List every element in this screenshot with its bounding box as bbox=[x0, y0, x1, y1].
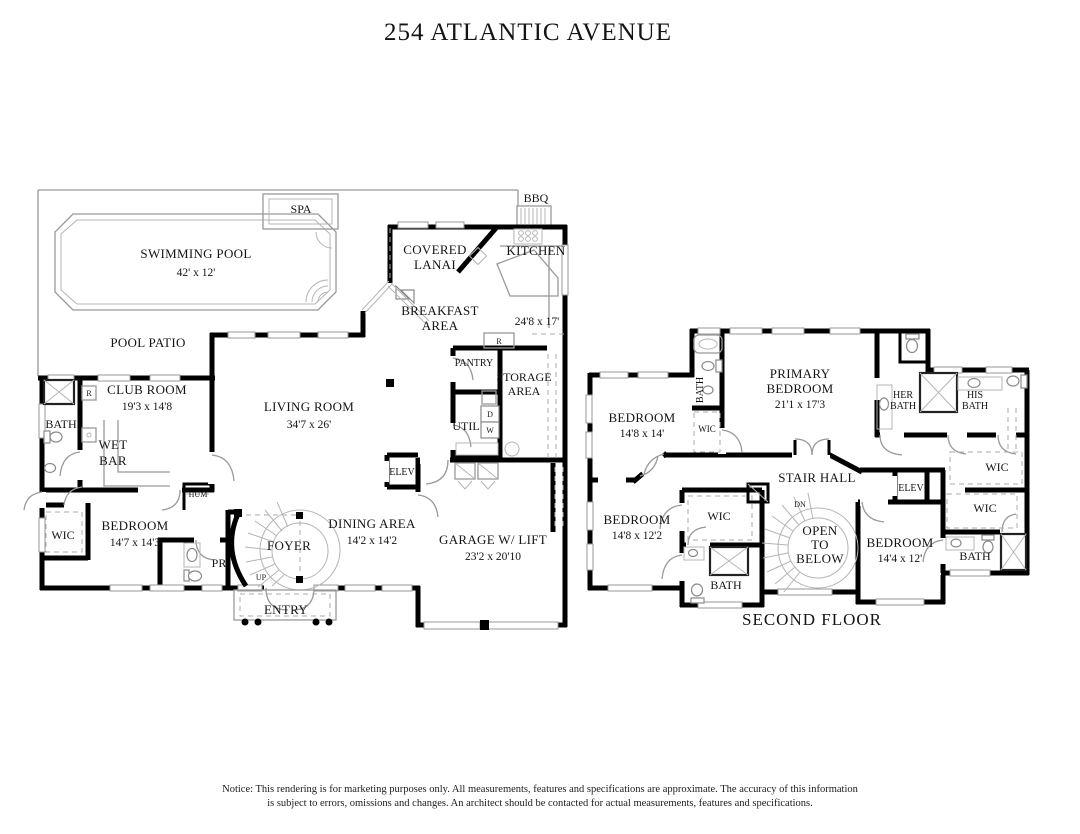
open-below-label-1: OPEN bbox=[802, 523, 837, 538]
washer-label: W bbox=[486, 426, 494, 435]
bbq-grill bbox=[517, 206, 551, 226]
fridge-label-kitchen: R bbox=[496, 337, 502, 346]
bath-mid-label: BATH bbox=[710, 578, 742, 592]
pool-patio-label: POOL PATIO bbox=[110, 335, 185, 350]
garage-equipment bbox=[455, 463, 498, 489]
bath-right-label: BATH bbox=[959, 549, 991, 563]
his-bath-label-2: BATH bbox=[962, 401, 988, 412]
notice-line-1: Notice: This rendering is for marketing … bbox=[222, 784, 858, 795]
hum-label: HUM bbox=[189, 490, 208, 499]
kitchen-label: KITCHEN bbox=[506, 243, 565, 258]
bedroom-c-label: BEDROOM bbox=[866, 535, 933, 550]
floor-plan-drawing: 254 ATLANTIC AVENUE bbox=[0, 0, 1080, 834]
covered-lanai-label-1: COVERED bbox=[403, 242, 467, 257]
kitchen-dims: 24'8 x 17' bbox=[515, 316, 559, 328]
elevator-label-f1: ELEV bbox=[389, 467, 415, 478]
spa-label: SPA bbox=[291, 202, 312, 216]
his-bath-label-1: HIS bbox=[967, 390, 983, 401]
wet-bar-label-2: BAR bbox=[99, 453, 127, 468]
first-floor-plan: SWIMMING POOL 42' x 12' SPA POOL PATIO B… bbox=[24, 190, 568, 630]
garage-dims: 23'2 x 20'10 bbox=[465, 551, 521, 563]
open-below-label-3: BELOW bbox=[796, 551, 844, 566]
bedroom-dims-f1: 14'7 x 14'3 bbox=[110, 537, 160, 549]
primary-bedroom-label-2: BEDROOM bbox=[766, 381, 833, 396]
bedroom-a-dims: 14'8 x 14' bbox=[620, 428, 664, 440]
second-floor-stair bbox=[762, 493, 858, 592]
util-label: UTIL bbox=[452, 419, 479, 433]
club-room-dims: 19'3 x 14'8 bbox=[122, 401, 172, 413]
wic-c-label: WIC bbox=[973, 501, 996, 515]
pantry-label: PANTRY bbox=[455, 358, 494, 369]
open-below-label-2: TO bbox=[811, 537, 829, 552]
living-room-label: LIVING ROOM bbox=[264, 399, 354, 414]
wic-d-label: WIC bbox=[707, 509, 730, 523]
garage-label: GARAGE W/ LIFT bbox=[439, 532, 547, 547]
second-floor-plan: PRIMARY BEDROOM 21'1 x 17'3 BATH BEDROOM… bbox=[586, 328, 1029, 629]
powder-room-label: PR bbox=[212, 556, 227, 570]
foyer-label: FOYER bbox=[267, 538, 311, 553]
her-bath-label-1: HER bbox=[893, 390, 913, 401]
dryer-label: D bbox=[487, 410, 493, 419]
wic-b-label: WIC bbox=[985, 460, 1008, 474]
dining-label: DINING AREA bbox=[328, 516, 416, 531]
entry-label: ENTRY bbox=[264, 602, 308, 617]
wet-bar-label-1: WET bbox=[98, 437, 127, 452]
elevator-label-f2: ELEV bbox=[898, 483, 924, 494]
bath-top-label: BATH bbox=[695, 377, 706, 403]
second-floor-title: SECOND FLOOR bbox=[742, 610, 882, 629]
breakfast-label-1: BREAKFAST bbox=[401, 303, 479, 318]
up-label: UP bbox=[256, 573, 267, 582]
bedroom-label-f1: BEDROOM bbox=[101, 518, 168, 533]
powder-room-fixtures bbox=[184, 543, 202, 581]
dn-label: DN bbox=[794, 500, 806, 509]
bedroom-b-label: BEDROOM bbox=[603, 512, 670, 527]
wic-label-f1: WIC bbox=[51, 528, 74, 542]
her-bath-label-2: BATH bbox=[890, 401, 916, 412]
dining-dims: 14'2 x 14'2 bbox=[347, 535, 397, 547]
bedroom-b-dims: 14'8 x 12'2 bbox=[612, 530, 662, 542]
notice-line-2: is subject to errors, omissions and chan… bbox=[267, 798, 813, 809]
bath-mid-fixtures bbox=[684, 547, 748, 603]
club-room-label: CLUB ROOM bbox=[107, 382, 187, 397]
covered-lanai-label-2: LANAI bbox=[414, 257, 456, 272]
living-room-dims: 34'7 x 26' bbox=[287, 419, 331, 431]
bedroom-a-label: BEDROOM bbox=[608, 410, 675, 425]
wic-a-label: WIC bbox=[698, 424, 716, 434]
floor-plan-page: 254 ATLANTIC AVENUE bbox=[0, 0, 1080, 834]
page-title: 254 ATLANTIC AVENUE bbox=[384, 19, 672, 46]
primary-bedroom-dims: 21'1 x 17'3 bbox=[775, 399, 825, 411]
storage-label-1: STORAGE bbox=[496, 370, 551, 384]
storage-label-2: AREA bbox=[508, 384, 541, 398]
primary-bedroom-label-1: PRIMARY bbox=[770, 366, 831, 381]
fridge-label-club: R bbox=[86, 389, 92, 398]
swimming-pool-dims: 42' x 12' bbox=[177, 267, 216, 279]
breakfast-label-2: AREA bbox=[422, 318, 459, 333]
swimming-pool-label: SWIMMING POOL bbox=[140, 246, 251, 261]
bath-label: BATH bbox=[45, 417, 77, 431]
notice-text: Notice: This rendering is for marketing … bbox=[222, 784, 858, 809]
bedroom-c-dims: 14'4 x 12' bbox=[878, 553, 922, 565]
stair-hall-label: STAIR HALL bbox=[778, 470, 855, 485]
lanai-double-door bbox=[396, 286, 414, 303]
storage-closets bbox=[532, 334, 564, 527]
bbq-label: BBQ bbox=[524, 191, 549, 205]
